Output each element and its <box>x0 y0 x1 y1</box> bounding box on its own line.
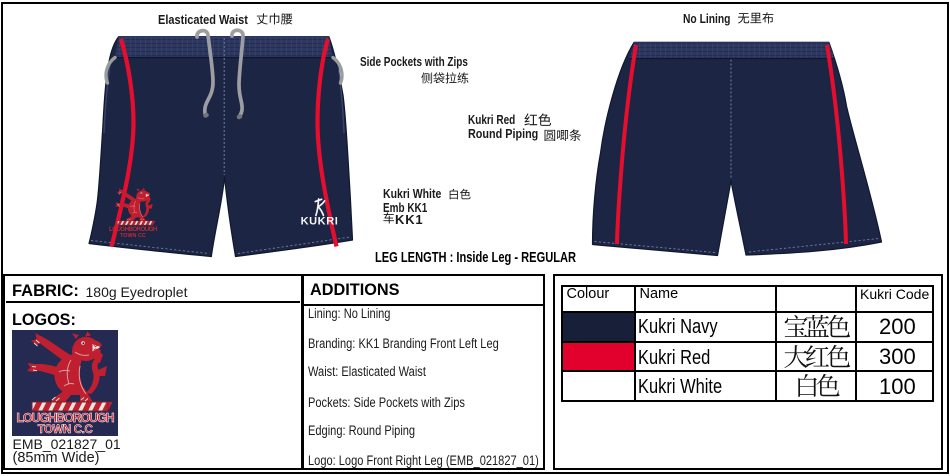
svg-text:TOWN CC: TOWN CC <box>120 233 146 239</box>
svg-text:KUKRI: KUKRI <box>301 216 339 228</box>
svg-text:TOWN C.C: TOWN C.C <box>38 424 93 436</box>
svg-text:LOUGHBOROUGH: LOUGHBOROUGH <box>16 411 114 425</box>
svg-text:LOUGHBOROUGH: LOUGHBOROUGH <box>109 226 157 233</box>
